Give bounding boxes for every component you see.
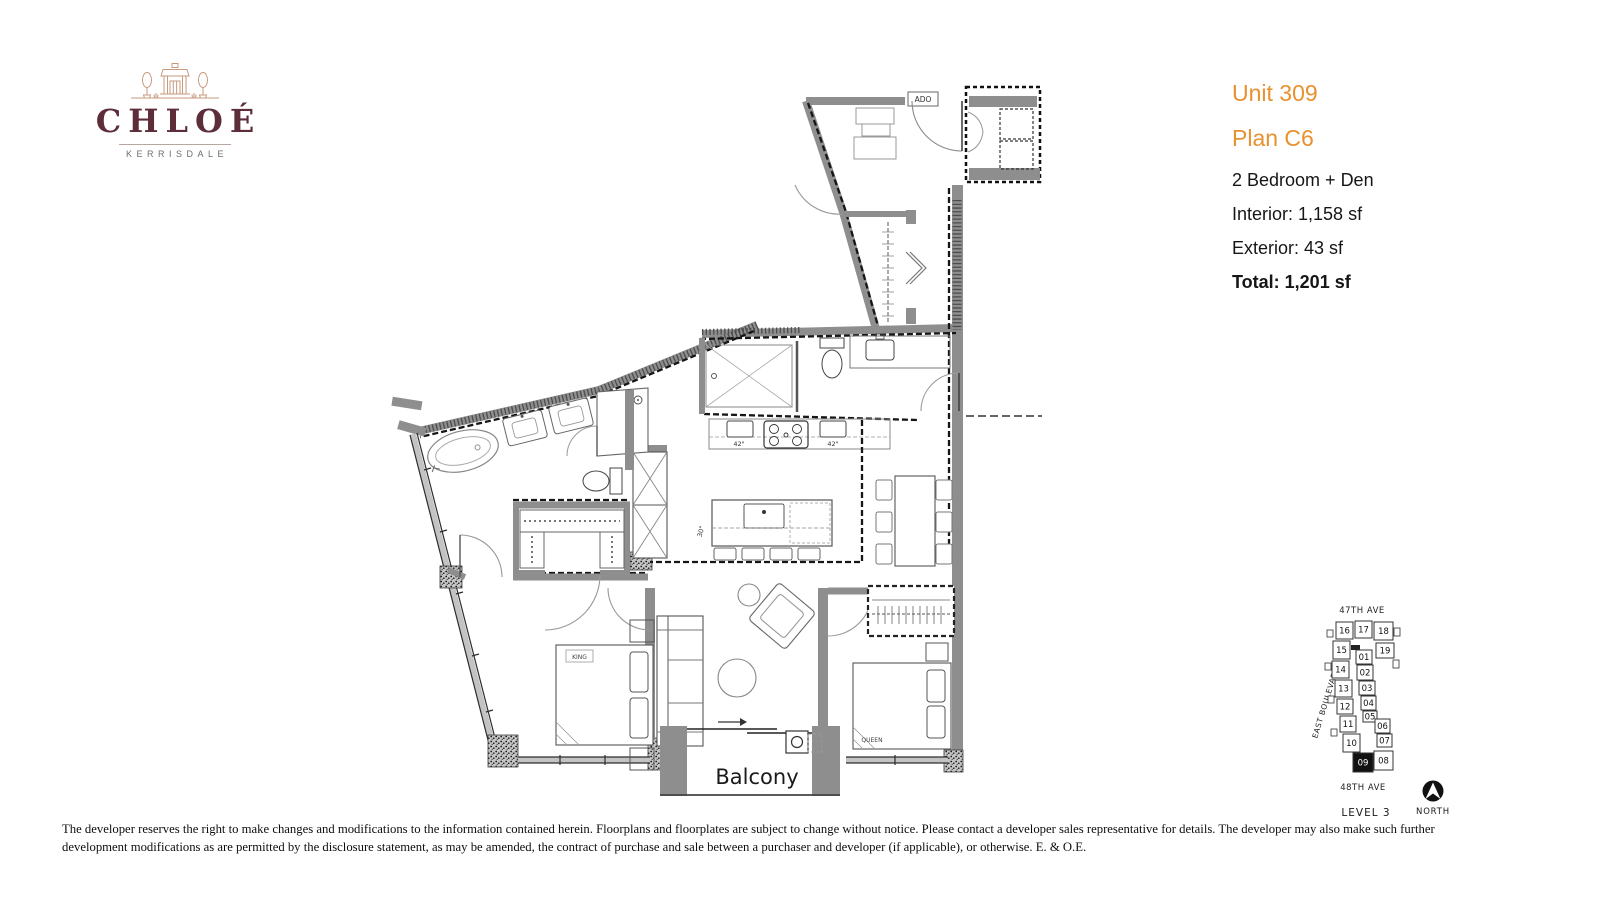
keyplan-unit-label-16: 16	[1339, 627, 1350, 637]
ensuite-toilet	[583, 468, 622, 494]
keyplan-unit-label-02: 02	[1360, 669, 1371, 679]
disclaimer: The developer reserves the right to make…	[62, 820, 1582, 857]
bottom-window-walls	[518, 755, 948, 765]
keyplan-unit-label-13: 13	[1338, 685, 1349, 695]
wall-jogs	[391, 397, 426, 437]
keyplan-unit-label-15: 15	[1336, 646, 1347, 656]
unit-type: 2 Bedroom + Den	[1232, 170, 1532, 191]
queen-bed-label: QUEEN	[861, 737, 882, 744]
keyplan-unit-label-04: 04	[1363, 699, 1374, 709]
cabinet-size-right: 42"	[827, 440, 838, 448]
kitchen-island: 30"	[696, 500, 832, 560]
balcony: Balcony	[660, 726, 840, 796]
island-size-label: 30"	[696, 525, 707, 538]
floorplan-sheet: CHLOÉ KERRISDALE Unit 309 Plan C6 2 Bedr…	[0, 0, 1600, 900]
unit-boundary-dashes	[420, 103, 956, 573]
ensuite-bathroom	[423, 388, 648, 577]
keyplan-unit-label-10: 10	[1346, 739, 1357, 749]
disclaimer-line1: The developer reserves the right to make…	[62, 820, 1582, 838]
keyplan-unit-label-07: 07	[1379, 737, 1390, 747]
keyplan-unit-label-12: 12	[1340, 703, 1351, 713]
master-bedroom: KING	[448, 570, 654, 770]
plan-code: Plan C6	[1232, 125, 1532, 152]
level-label: LEVEL 3	[1341, 807, 1390, 819]
keyplan-unit-label-08: 08	[1378, 757, 1389, 767]
keyplan-unit-label-06: 06	[1377, 722, 1388, 732]
keyplan-stair-core	[1351, 645, 1360, 650]
keyplan-unit-label-03: 03	[1362, 684, 1373, 694]
unit-summary: Unit 309 Plan C6 2 Bedroom + Den Interio…	[1232, 80, 1532, 306]
floorplan-drawing: ADO	[385, 80, 1045, 810]
keyplan-unit-label-14: 14	[1335, 666, 1346, 676]
bedroom-2: QUEEN	[818, 586, 954, 749]
logo-pavilion-icon	[125, 60, 225, 102]
street-top-label: 47TH AVE	[1339, 606, 1385, 616]
total-area: Total: 1,201 sf	[1232, 272, 1532, 293]
disclaimer-line2: development modifications as are permitt…	[62, 838, 1582, 856]
brand-name: CHLOÉ	[84, 105, 266, 139]
walk-in-closet	[513, 505, 630, 630]
window-wall-left	[410, 433, 496, 744]
keyplan-unit-label-17: 17	[1358, 626, 1369, 636]
keyplan-unit-label-05: 05	[1365, 713, 1376, 723]
keyplan: 47TH AVE 48TH AVE EAST BOULEVARD 1617181…	[1290, 585, 1460, 825]
keyplan-unit-label-09: 09	[1358, 759, 1369, 769]
dining-area	[876, 476, 952, 566]
laundry-box	[966, 87, 1040, 182]
king-bed-label: KING	[572, 654, 587, 661]
exterior-area: Exterior: 43 sf	[1232, 238, 1532, 259]
bedroom2-closet	[868, 586, 954, 636]
balcony-label: Balcony	[715, 765, 798, 789]
keyplan-units: 16171815190114021303120405110610070908	[1332, 621, 1394, 772]
unit-number: Unit 309	[1232, 80, 1532, 107]
keyplan-unit-label-01: 01	[1359, 653, 1370, 663]
interior-area: Interior: 1,158 sf	[1232, 204, 1532, 225]
entry-door-tag: ADO	[915, 95, 932, 104]
main-bathroom	[702, 334, 959, 414]
keyplan-unit-label-11: 11	[1343, 720, 1354, 730]
north-compass-icon	[1423, 781, 1444, 802]
keyplan-unit-label-18: 18	[1378, 627, 1389, 637]
street-bottom-label: 48TH AVE	[1340, 783, 1386, 793]
brand-logo: CHLOÉ KERRISDALE	[84, 60, 266, 159]
pantry-cabinets	[633, 445, 667, 558]
logo-divider	[119, 144, 231, 145]
keyplan-unit-label-19: 19	[1380, 647, 1391, 657]
brand-subtitle: KERRISDALE	[84, 149, 266, 159]
north-label: NORTH	[1416, 807, 1450, 817]
cabinet-size-left: 42"	[733, 440, 744, 448]
